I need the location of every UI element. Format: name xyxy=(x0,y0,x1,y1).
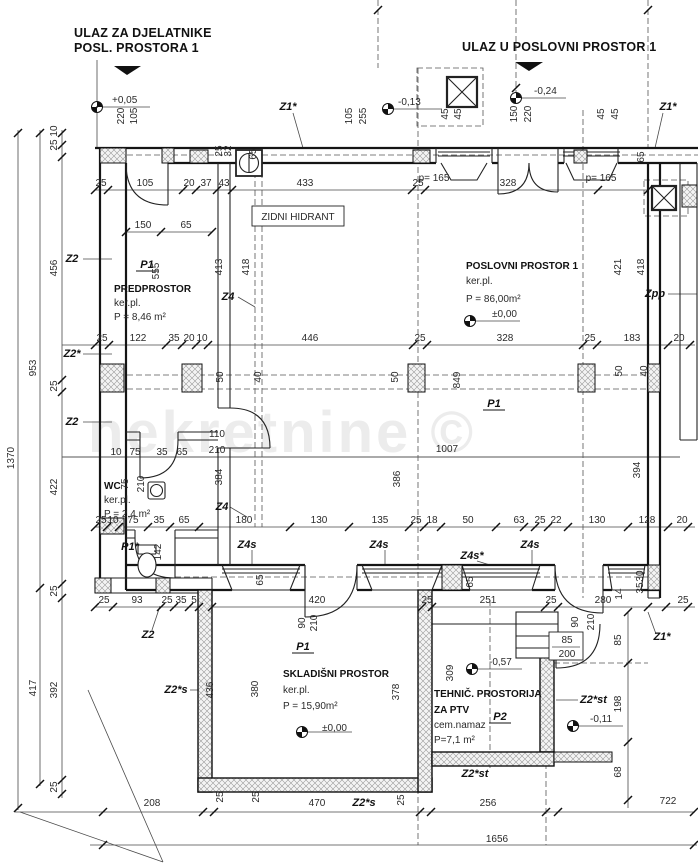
dim-label: 50 xyxy=(390,371,401,383)
dim-label: 25 xyxy=(95,515,107,526)
door-size: 90 xyxy=(297,617,308,629)
dim-label: 20 xyxy=(673,333,685,344)
door-size: 110 xyxy=(209,429,225,440)
dim-label: 421 xyxy=(613,258,624,275)
dim-label: 220 xyxy=(116,107,127,124)
room-area: P=7,1 m² xyxy=(434,735,476,746)
room-finish: ker.pl. xyxy=(114,298,141,309)
dim-label: 45 xyxy=(596,108,607,120)
wall-tag: Z4s xyxy=(237,539,257,551)
dim-label: 65 xyxy=(255,574,266,586)
wall-tag: Z4 xyxy=(215,501,229,513)
dim-label: 436 xyxy=(205,681,216,698)
dim-label: 35 xyxy=(635,582,646,594)
dim-label: 849 xyxy=(452,371,463,388)
dim-label: 418 xyxy=(636,258,647,275)
room-tag: P1* xyxy=(121,541,139,553)
elevation-label: -0,24 xyxy=(534,86,557,97)
dim-label: 10 xyxy=(107,515,119,526)
dim-label: 280 xyxy=(595,595,612,606)
door-size: 75 xyxy=(120,478,131,490)
dim-label: 105 xyxy=(137,178,154,189)
elevation-label: ±0,00 xyxy=(322,723,347,734)
dim-label: 35 xyxy=(168,333,180,344)
dim-label: 35 xyxy=(156,447,168,458)
room-area: P = 15,90m² xyxy=(283,701,338,712)
dim-label: 37 xyxy=(200,178,212,189)
dim-label: 50 xyxy=(462,515,474,526)
dim-label: 378 xyxy=(391,683,402,700)
dim-label: 20 xyxy=(183,178,195,189)
dim-label: 386 xyxy=(392,470,403,487)
dim-label: 1656 xyxy=(486,834,509,845)
dim-label: 45 xyxy=(453,108,464,120)
dim-label: 18 xyxy=(426,515,438,526)
dim-label: 25 xyxy=(98,595,110,606)
dim-label: 20 xyxy=(676,515,688,526)
dim-label: 105 xyxy=(129,107,140,124)
room-tag: P2 xyxy=(493,711,506,723)
room-name: TEHNIČ. PROSTORIJA xyxy=(434,687,542,700)
dim-label: 75 xyxy=(129,447,141,458)
floor-plan: ULAZ ZA DJELATNIKE POSL. PROSTORA 1 ULAZ… xyxy=(0,0,698,866)
dim-label: 220 xyxy=(523,105,534,122)
dim-label: 25 xyxy=(534,515,546,526)
dim-label: 25 xyxy=(677,595,689,606)
dim-label: 5 xyxy=(191,595,197,606)
dim-label: 555 xyxy=(151,262,162,279)
door-size: 210 xyxy=(586,613,597,630)
dim-label: 25 xyxy=(49,380,60,392)
room-name: WC xyxy=(104,481,121,492)
dim-label: 65 xyxy=(248,148,259,160)
hydrant-label: ZIDNI HIDRANT xyxy=(261,212,334,223)
dim-label: 25 xyxy=(410,515,422,526)
dim-label: 25 xyxy=(584,333,596,344)
dim-label: 65 xyxy=(176,447,188,458)
dim-label: 68 xyxy=(613,766,624,778)
dim-label: 10 xyxy=(49,125,60,137)
dimension-labels: +0,05220105Z1*105255-0,134545150220-0,24… xyxy=(6,86,689,845)
dim-label: 25 xyxy=(96,333,108,344)
wall-tag: Z2 xyxy=(65,253,79,265)
dim-label: 256 xyxy=(480,798,497,809)
dim-label: 50 xyxy=(614,365,625,377)
room-area: P = 86,00m² xyxy=(466,294,521,305)
dim-label: 420 xyxy=(309,595,326,606)
wall-tag: Z1* xyxy=(278,101,297,113)
dim-label: 251 xyxy=(480,595,497,606)
wall-tag: Zpp xyxy=(644,288,665,300)
elevation-label: ±0,00 xyxy=(492,309,517,320)
door-size: 210 xyxy=(209,445,226,456)
dim-label: 422 xyxy=(49,478,60,495)
dim-label: 93 xyxy=(131,595,143,606)
dim-label: 65 xyxy=(178,515,190,526)
wall-tag: Z2*st xyxy=(579,694,608,706)
dim-label: p= 165 xyxy=(586,173,617,184)
dim-label: 135 xyxy=(372,515,389,526)
wall-tag: Z4s xyxy=(520,539,540,551)
dim-label: 953 xyxy=(28,359,39,376)
dim-label: 722 xyxy=(660,796,677,807)
room-area: P = 8,46 m² xyxy=(114,312,166,323)
dim-label: 65 xyxy=(636,151,647,163)
dim-label: 40 xyxy=(639,365,650,377)
dim-label: 384 xyxy=(214,468,225,485)
room-name: SKLADIŠNI PROSTOR xyxy=(283,667,390,680)
dim-label: 25 xyxy=(95,178,107,189)
dim-label: 43 xyxy=(218,178,230,189)
dim-label: 417 xyxy=(28,679,39,696)
dim-label: 130 xyxy=(589,515,606,526)
dim-label: 394 xyxy=(632,461,643,478)
wall-tag: Z1* xyxy=(652,631,671,643)
wall-tag: Z4s* xyxy=(459,550,484,562)
dim-label: 418 xyxy=(241,258,252,275)
dim-label: 35 xyxy=(175,595,187,606)
dim-label: 25 xyxy=(251,791,262,803)
elevation-label: +0,05 xyxy=(112,95,138,106)
dim-label: 433 xyxy=(297,178,314,189)
wall-tag: Z4s xyxy=(369,539,389,551)
dim-label: 328 xyxy=(500,178,517,189)
room-name: POSLOVNI PROSTOR 1 xyxy=(466,261,578,272)
plan-drawing: nekretnine © xyxy=(0,0,698,866)
dim-label: 45 xyxy=(440,108,451,120)
dim-label: 25 xyxy=(414,333,426,344)
dim-label: 25 xyxy=(421,595,433,606)
dim-label: 25 xyxy=(545,595,557,606)
room-name: ZA PTV xyxy=(434,705,470,716)
dim-label: 20 xyxy=(183,333,195,344)
wall-tag: Z1* xyxy=(658,101,677,113)
dim-label: 470 xyxy=(309,798,326,809)
dim-label: 150 xyxy=(509,105,520,122)
dim-label: 10 xyxy=(110,447,122,458)
dim-label: 128 xyxy=(639,515,656,526)
dim-label: 32 xyxy=(223,145,234,157)
dim-label: 63 xyxy=(513,515,525,526)
dim-label: 35 xyxy=(153,515,165,526)
door-size: 200 xyxy=(559,649,576,660)
dim-label: 208 xyxy=(144,798,161,809)
room-finish: ker.pl. xyxy=(104,495,131,506)
dim-label: 14 xyxy=(614,588,625,600)
room-finish: ker.pl. xyxy=(283,685,310,696)
wall-tag: Z2*s xyxy=(351,797,375,809)
dim-label: 40 xyxy=(253,371,264,383)
wall-tag: Z2*st xyxy=(461,768,490,780)
dim-label: 105 xyxy=(344,107,355,124)
dim-label: 30 xyxy=(635,570,646,582)
elevation-label: -0,11 xyxy=(590,714,612,725)
dim-label: 50 xyxy=(215,371,226,383)
pilasters xyxy=(95,148,697,593)
dim-label: 392 xyxy=(49,681,60,698)
dim-label: 130 xyxy=(311,515,328,526)
wall-tag: Z2 xyxy=(65,416,79,428)
dim-label: 1007 xyxy=(436,444,459,455)
room-finish: cem.namaz xyxy=(434,720,486,731)
dim-label: 25 xyxy=(412,178,424,189)
elevation-label: -0,13 xyxy=(398,97,421,108)
door-size: 210 xyxy=(136,475,147,492)
dim-label: 25 xyxy=(215,791,226,803)
wall-tag: Z2*s xyxy=(163,684,187,696)
dim-label: 25 xyxy=(49,139,60,151)
room-tag: P1 xyxy=(487,398,500,410)
entrance-arrow-down-icon xyxy=(515,62,543,71)
wall-tag: Z2* xyxy=(62,348,81,360)
dim-label: 10 xyxy=(196,333,208,344)
dim-label: 85 xyxy=(613,634,624,646)
dim-label: 122 xyxy=(130,333,147,344)
room-tag: P1 xyxy=(296,641,309,653)
dim-label: 328 xyxy=(497,333,514,344)
dim-label: 255 xyxy=(358,107,369,124)
room-name: PREDPROSTOR xyxy=(114,284,192,295)
door-size: 210 xyxy=(309,614,320,631)
dim-label: 75 xyxy=(127,515,139,526)
dim-label: 413 xyxy=(214,258,225,275)
dim-label: 180 xyxy=(236,515,253,526)
dim-label: 45 xyxy=(610,108,621,120)
dim-label: 150 xyxy=(135,220,152,231)
dim-label: 25 xyxy=(49,781,60,793)
dim-label: 142 xyxy=(153,543,164,560)
wall-tag: Z4 xyxy=(221,291,235,303)
dim-label: 183 xyxy=(624,333,641,344)
dim-label: 456 xyxy=(49,259,60,276)
dim-label: 25 xyxy=(161,595,173,606)
dim-label: 380 xyxy=(250,680,261,697)
door-size: 90 xyxy=(570,616,581,628)
dim-label: 65 xyxy=(465,576,476,588)
dim-label: 65 xyxy=(180,220,192,231)
door-size: 85 xyxy=(561,635,573,646)
dim-label: 446 xyxy=(302,333,319,344)
dim-label: 25 xyxy=(396,794,407,806)
room-finish: ker.pl. xyxy=(466,276,493,287)
elevation-label: -0,57 xyxy=(489,657,512,668)
dim-label: 25 xyxy=(49,585,60,597)
dim-label: 309 xyxy=(445,664,456,681)
dim-label: 22 xyxy=(550,515,562,526)
dim-label: 198 xyxy=(613,695,624,712)
entrance-arrow-down-icon xyxy=(114,66,141,75)
wall-tag: Z2 xyxy=(141,629,155,641)
dim-label: 1370 xyxy=(6,446,17,469)
